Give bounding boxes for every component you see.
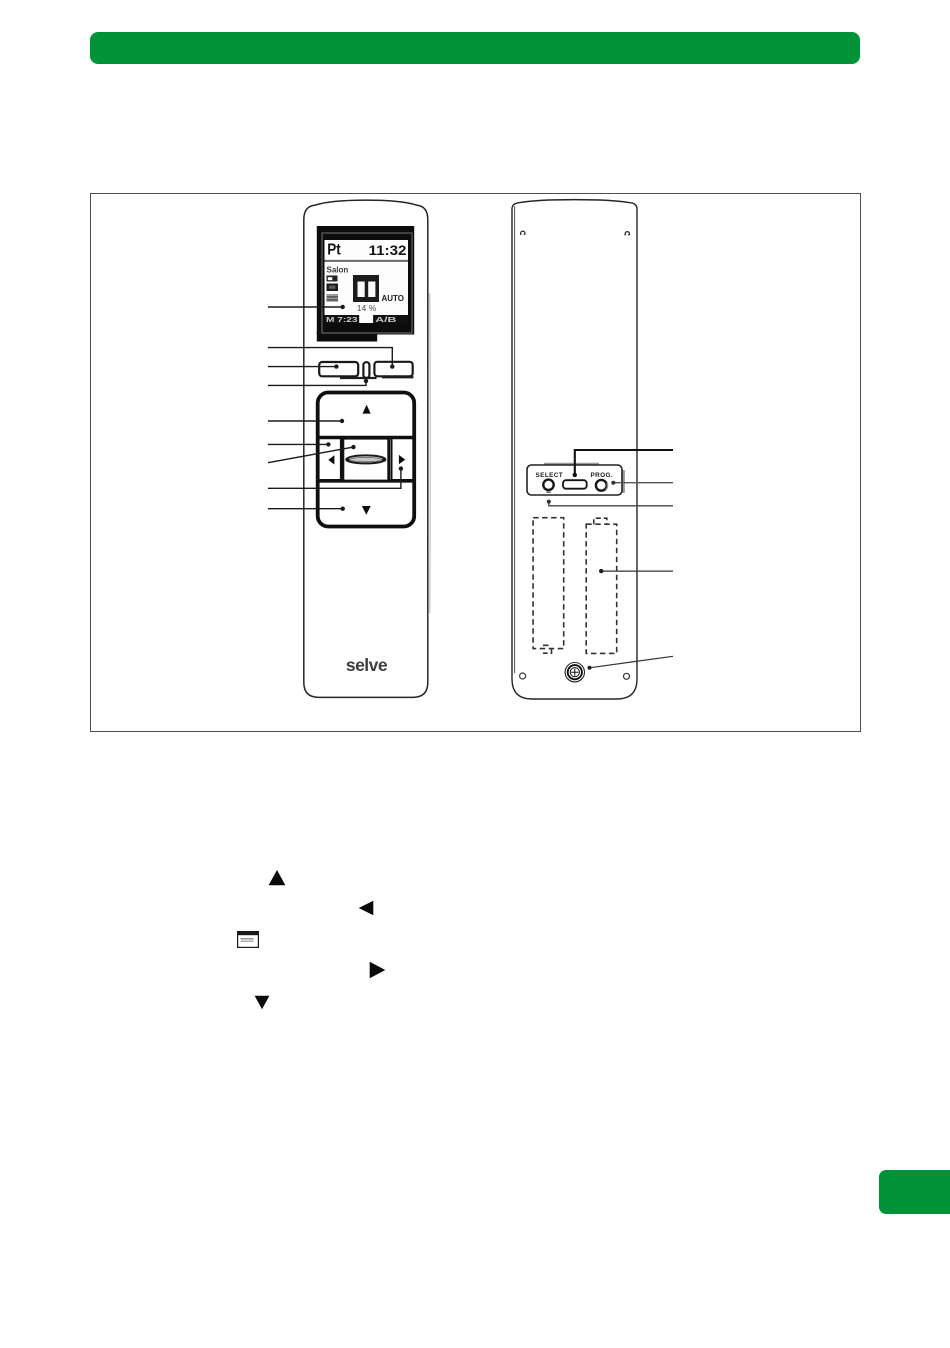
svg-text:SELECT: SELECT	[536, 472, 564, 479]
svg-text:selve: selve	[346, 655, 388, 675]
svg-text:14 %: 14 %	[357, 304, 377, 313]
svg-text:PROG.: PROG.	[591, 472, 614, 479]
svg-text:Pt: Pt	[327, 242, 341, 259]
svg-text:A/B: A/B	[375, 315, 397, 324]
svg-text:Salon: Salon	[327, 266, 349, 275]
svg-text:11:32: 11:32	[369, 242, 407, 258]
svg-text:M 7:23: M 7:23	[326, 315, 358, 324]
svg-text:AUTO: AUTO	[382, 293, 405, 303]
